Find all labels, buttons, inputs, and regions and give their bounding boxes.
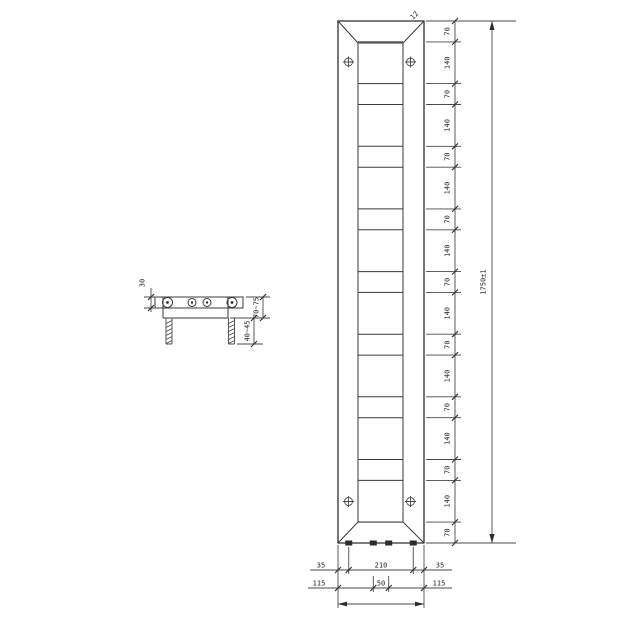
panel-face-edges bbox=[358, 43, 403, 522]
threaded-rod bbox=[229, 318, 235, 344]
height-segment-label: 140 bbox=[444, 119, 452, 132]
technical-drawing-sheet: 30 70~75 40~45 12 1750±1 70 bbox=[0, 0, 630, 630]
height-segment-label: 70 bbox=[444, 340, 452, 348]
overall-height-arrow-top bbox=[489, 21, 494, 30]
connection-center-dot bbox=[231, 301, 234, 304]
radiator-drawing: 30 70~75 40~45 12 1750±1 70 bbox=[0, 0, 630, 630]
width-extension-lines bbox=[338, 545, 424, 608]
bottom-connector bbox=[345, 541, 352, 546]
fixing-point-symbol bbox=[343, 496, 354, 507]
height-segment-label: 140 bbox=[444, 56, 452, 69]
fixing-point-symbol bbox=[405, 57, 416, 68]
width-115-right-label: 115 bbox=[433, 580, 446, 588]
height-dimensions: 1750±1 701407014070140701407014070140701… bbox=[358, 18, 516, 546]
side-view: 30 70~75 40~45 bbox=[139, 279, 271, 347]
height-segment-label: 140 bbox=[444, 307, 452, 320]
overall-width-arrow-left bbox=[338, 602, 347, 607]
wall-distance-dimension-label: 70~75 bbox=[253, 297, 261, 318]
threaded-rod bbox=[166, 318, 172, 344]
height-segment-label: 70 bbox=[444, 215, 452, 223]
height-segment-label: 140 bbox=[444, 370, 452, 383]
height-segment-label: 70 bbox=[444, 278, 452, 286]
depth-dimension-label: 30 bbox=[139, 279, 147, 287]
height-segment-label: 140 bbox=[444, 182, 452, 195]
connection-center-dot bbox=[191, 301, 193, 303]
bottom-connector bbox=[385, 541, 392, 546]
overall-width-arrow-right bbox=[415, 602, 424, 607]
bevel-dimension-label: 12 bbox=[409, 10, 421, 22]
bottom-connector bbox=[370, 541, 377, 546]
width-35-right-label: 35 bbox=[436, 562, 444, 570]
bottom-connector bbox=[410, 541, 417, 546]
panel-bevel-edges bbox=[338, 21, 424, 543]
connection-center-dot bbox=[206, 301, 208, 303]
height-dimension-chain: 7014070140701407014070140701407014070140… bbox=[358, 18, 461, 546]
height-segment-label: 70 bbox=[444, 403, 452, 411]
overall-height-arrow-bottom bbox=[489, 534, 494, 543]
connection-center-dot bbox=[166, 301, 169, 304]
panel-outline bbox=[338, 21, 424, 543]
width-dimensions: 35 210 35 115 50 115 bbox=[308, 545, 452, 608]
width-210-label: 210 bbox=[375, 562, 388, 570]
height-dimension-lines bbox=[426, 21, 516, 543]
fixing-point-symbol bbox=[343, 57, 354, 68]
width-115-left-label: 115 bbox=[313, 580, 326, 588]
front-view: 12 bbox=[338, 10, 424, 546]
height-segment-label: 140 bbox=[444, 495, 452, 508]
height-segment-label: 70 bbox=[444, 466, 452, 474]
width-35-left-label: 35 bbox=[317, 562, 325, 570]
width-50-label: 50 bbox=[377, 580, 385, 588]
height-segment-label: 70 bbox=[444, 27, 452, 35]
overall-height-dimension-label: 1750±1 bbox=[480, 269, 488, 294]
height-segment-label: 140 bbox=[444, 432, 452, 445]
height-segment-label: 70 bbox=[444, 152, 452, 160]
height-segment-label: 70 bbox=[444, 528, 452, 536]
height-segment-label: 140 bbox=[444, 244, 452, 257]
rod-length-dimension-label: 40~45 bbox=[244, 320, 252, 341]
fixing-point-symbol bbox=[405, 496, 416, 507]
height-segment-label: 70 bbox=[444, 90, 452, 98]
